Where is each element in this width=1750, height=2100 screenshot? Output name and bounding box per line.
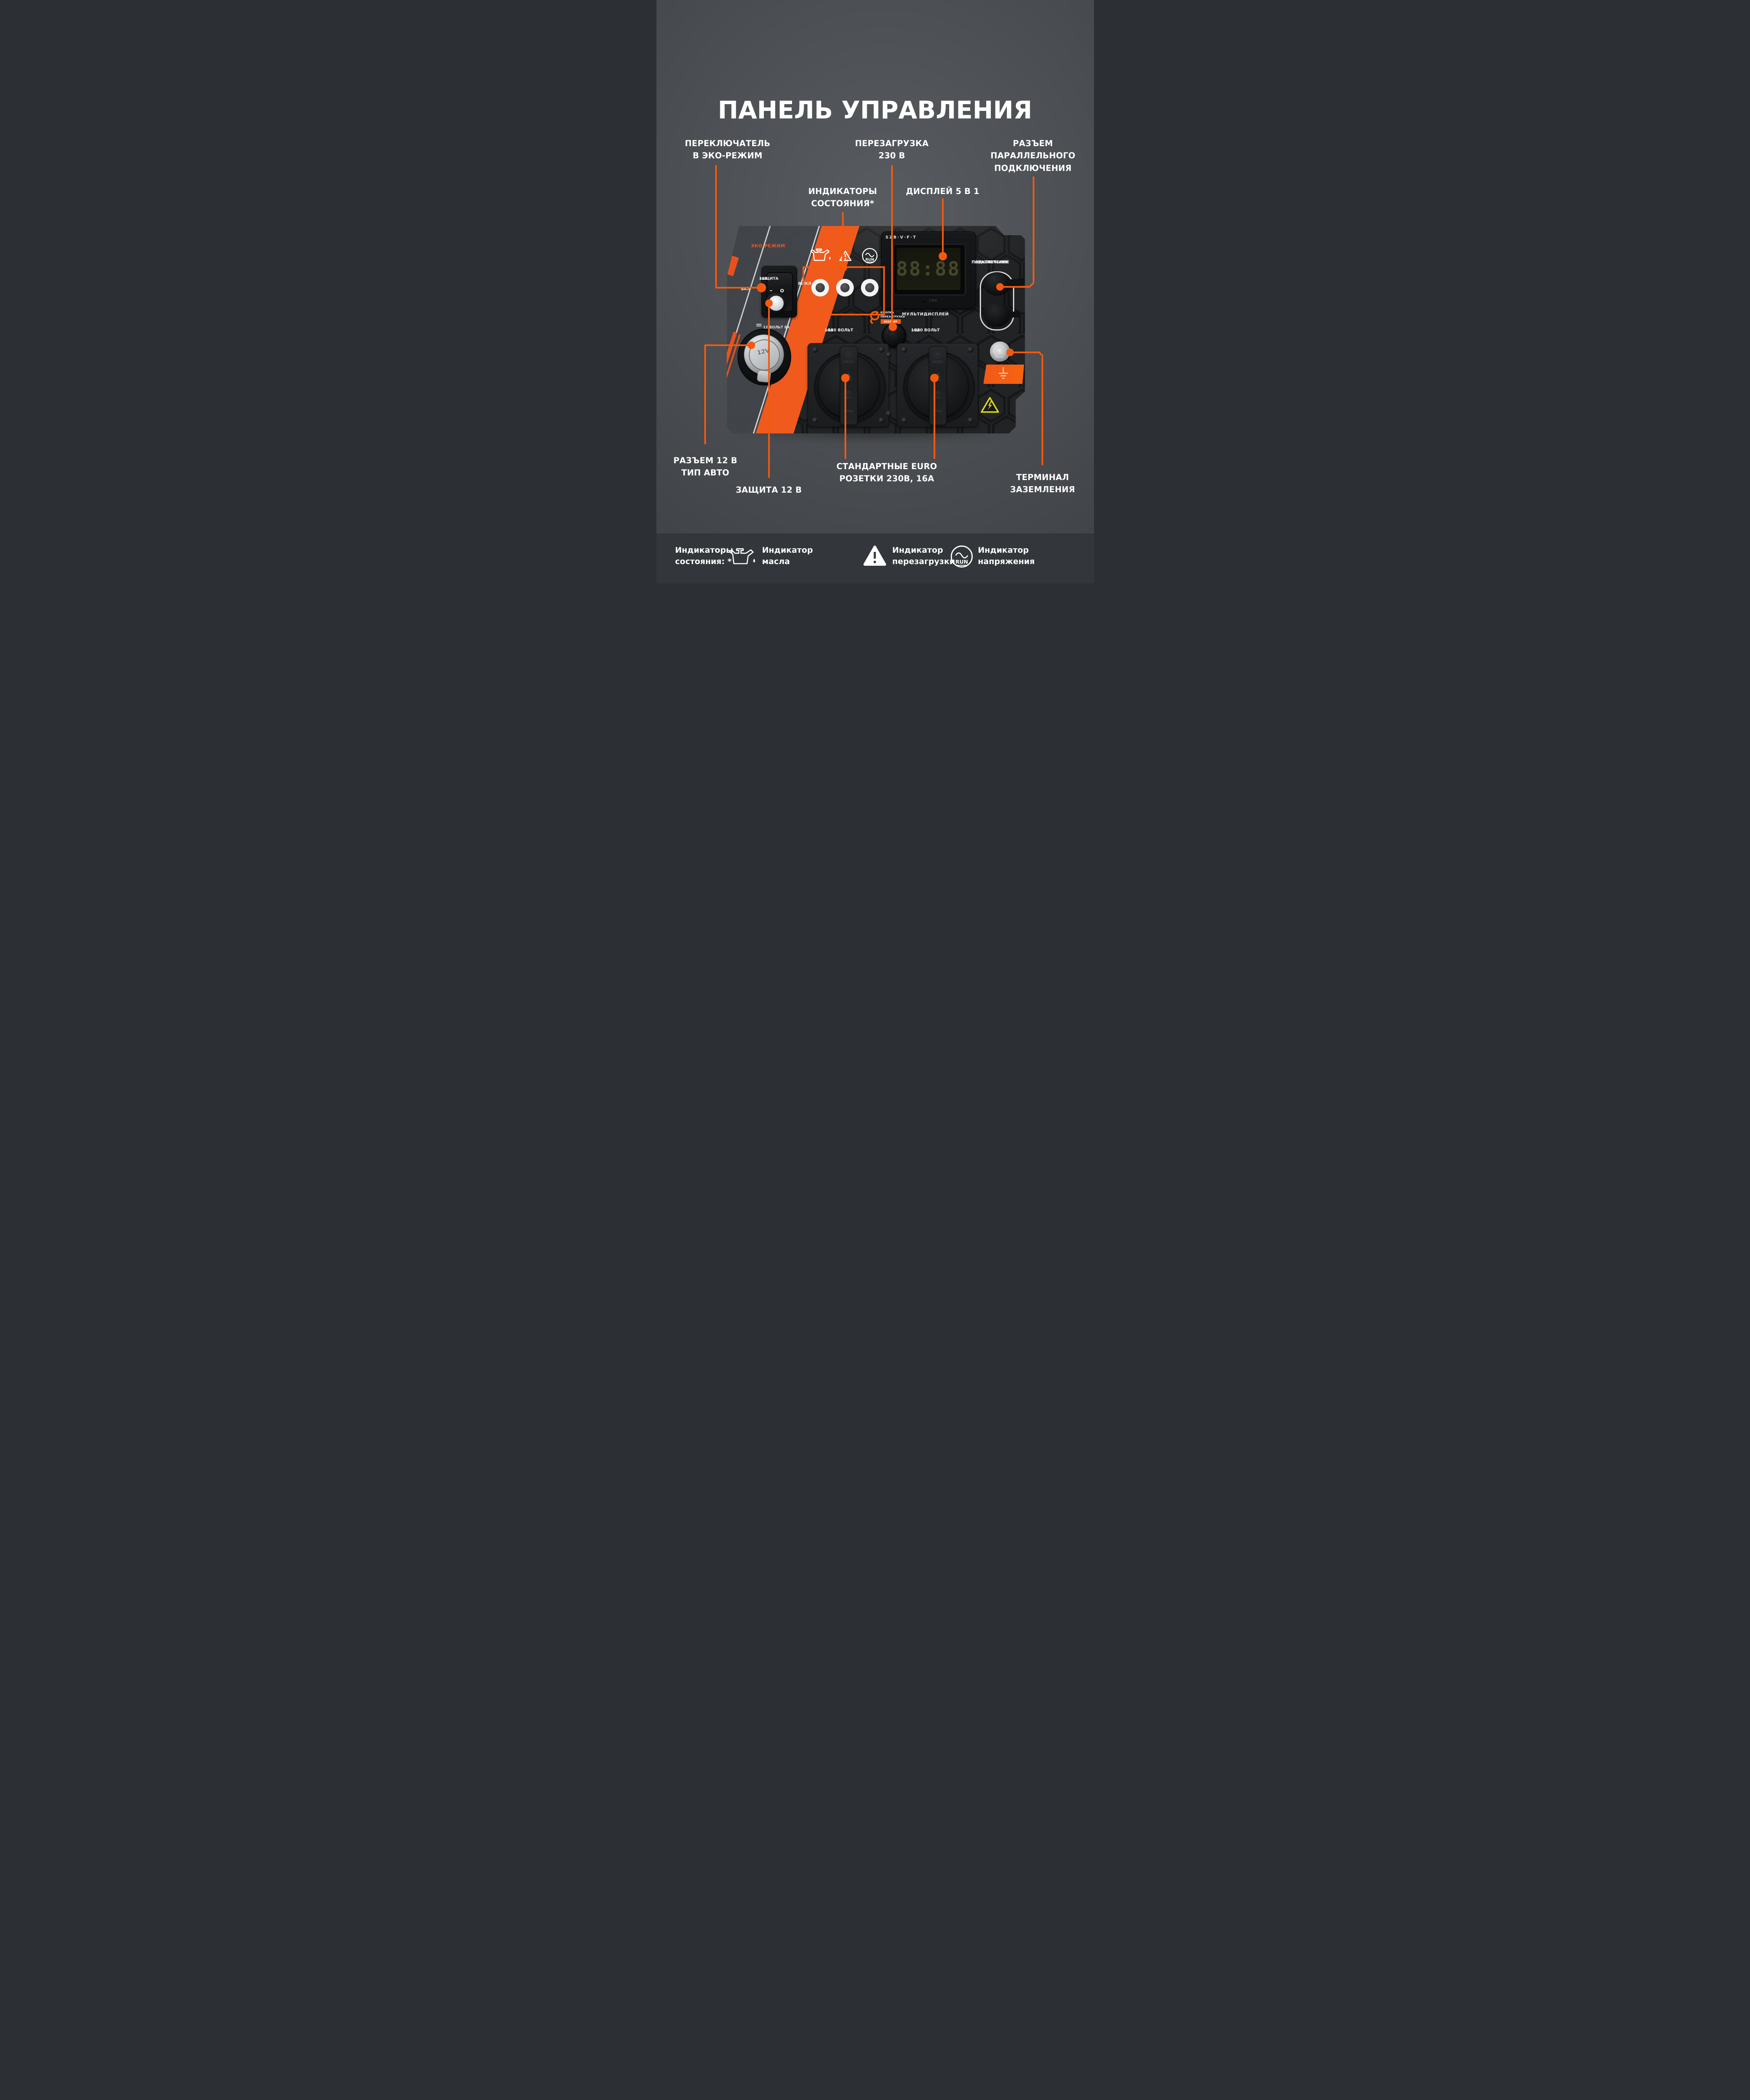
callout-dot-parallel: [996, 283, 1004, 291]
callout-dot-restart: [889, 323, 897, 331]
callout-socket-12v: РАЗЪЕМ 12 В ТИП АВТО: [656, 454, 755, 479]
callout-ground: ТЕРМИНАЛ ЗАЗЕМЛЕНИЯ: [980, 471, 1094, 496]
run-legend-icon: RUN: [950, 544, 974, 569]
infographic-page: ПАНЕЛЬ УПРАВЛЕНИЯ ПЕРЕКЛЮЧАТЕЛЬ В ЭКО-РЕ…: [656, 0, 1094, 583]
callout-line-ground: [1038, 351, 1043, 357]
callout-line-protection: [768, 303, 770, 478]
legend-footer: Индикаторы состояния: * Индикатор масла …: [656, 533, 1094, 583]
eco-mode-label: ЭКО-РЕЖИМ: [751, 244, 785, 249]
ground-symbol-icon: [997, 367, 1009, 381]
legend-item-restart: Индикатор перезагрузки: [892, 545, 955, 567]
callout-line-eco: [715, 165, 717, 288]
switch-off-glyph: O: [780, 288, 784, 294]
euro-socket-left-handle: G GHGU TÜV 16 250~ IP44: [840, 346, 858, 425]
page-title: ПАНЕЛЬ УПРАВЛЕНИЯ: [656, 96, 1094, 124]
euro-socket-right-handle: G GHGU TÜV 16 250~ IP44: [929, 346, 947, 425]
callout-line-indicators: [842, 212, 844, 267]
euro-socket-left: G GHGU TÜV 16 250~ IP44: [808, 343, 889, 427]
callout-line-eco: [715, 287, 761, 289]
oil-icon: [810, 248, 832, 262]
callout-line-socket12v: [704, 344, 749, 346]
callout-eco-switch: ПЕРЕКЛЮЧАТЕЛЬ В ЭКО-РЕЖИМ: [665, 137, 791, 162]
volt12-label: 12 ВОЛЬТ 8А: [749, 324, 798, 330]
svg-text:RUN: RUN: [865, 258, 874, 262]
lcd-digits: 88:88: [896, 257, 960, 280]
euro-socket-right: G GHGU TÜV 16 250~ IP44: [897, 343, 978, 427]
oil-legend-icon: [728, 547, 756, 566]
callout-dot-display: [939, 252, 947, 260]
callout-line-socket12v: [704, 344, 706, 444]
callout-protection-12v: ЗАЩИТА 12 В: [706, 484, 832, 496]
run-icon: RUN: [861, 247, 878, 265]
warning-legend-icon: [863, 545, 887, 567]
legend-item-oil: Индикатор масла: [762, 545, 813, 567]
callout-parallel: РАЗЪЕМ ПАРАЛЛЕЛЬНОГО ПОДКЛЮЧЕНИЯ: [970, 137, 1094, 174]
svg-text:RUN: RUN: [955, 559, 968, 565]
dc-symbol: [756, 324, 761, 328]
display-indicator-dot: [923, 299, 926, 303]
callout-line-euro-right: [934, 378, 935, 459]
generator-control-panel: ЭКО-РЕЖИМ – O ВКЛ ВЫКЛ RUN SZB·V·F·T: [727, 226, 1025, 433]
callout-display: ДИСПЛЕЙ 5 В 1: [880, 185, 1006, 197]
indicators-highlight-box: [803, 266, 885, 315]
legend-heading: Индикаторы состояния: *: [675, 545, 734, 567]
callout-dot-eco: [757, 283, 766, 292]
callout-line-restart: [891, 165, 893, 327]
ground-terminal-stud: [996, 348, 1004, 355]
callout-euro-sockets: СТАНДАРТНЫЕ EURO РОЗЕТКИ 230В, 16А: [824, 460, 950, 485]
callout-line-parallel: [1033, 176, 1034, 283]
legend-item-voltage: Индикатор напряжения: [978, 545, 1035, 567]
restart-btn-label-2: ПЕРЕЗАГРУЗКИ: [881, 315, 906, 318]
callout-line-parallel: [1000, 286, 1030, 288]
high-voltage-warning-icon: [980, 396, 1000, 414]
callout-line-ground: [1012, 352, 1040, 353]
callout-restart-230: ПЕРЕЗАГРУЗКА 230 В: [829, 137, 955, 162]
callout-line-euro-left: [845, 378, 846, 459]
display-indicator-label: CNA: [929, 299, 937, 302]
parallel-knob-2-handle: [1005, 311, 1021, 318]
callout-line-ground: [1042, 357, 1043, 465]
warning-icon: [839, 250, 852, 262]
display-header: SZB·V·F·T: [886, 235, 917, 240]
callout-line-display: [942, 198, 944, 255]
lcd-screen: 88:88: [897, 248, 960, 290]
